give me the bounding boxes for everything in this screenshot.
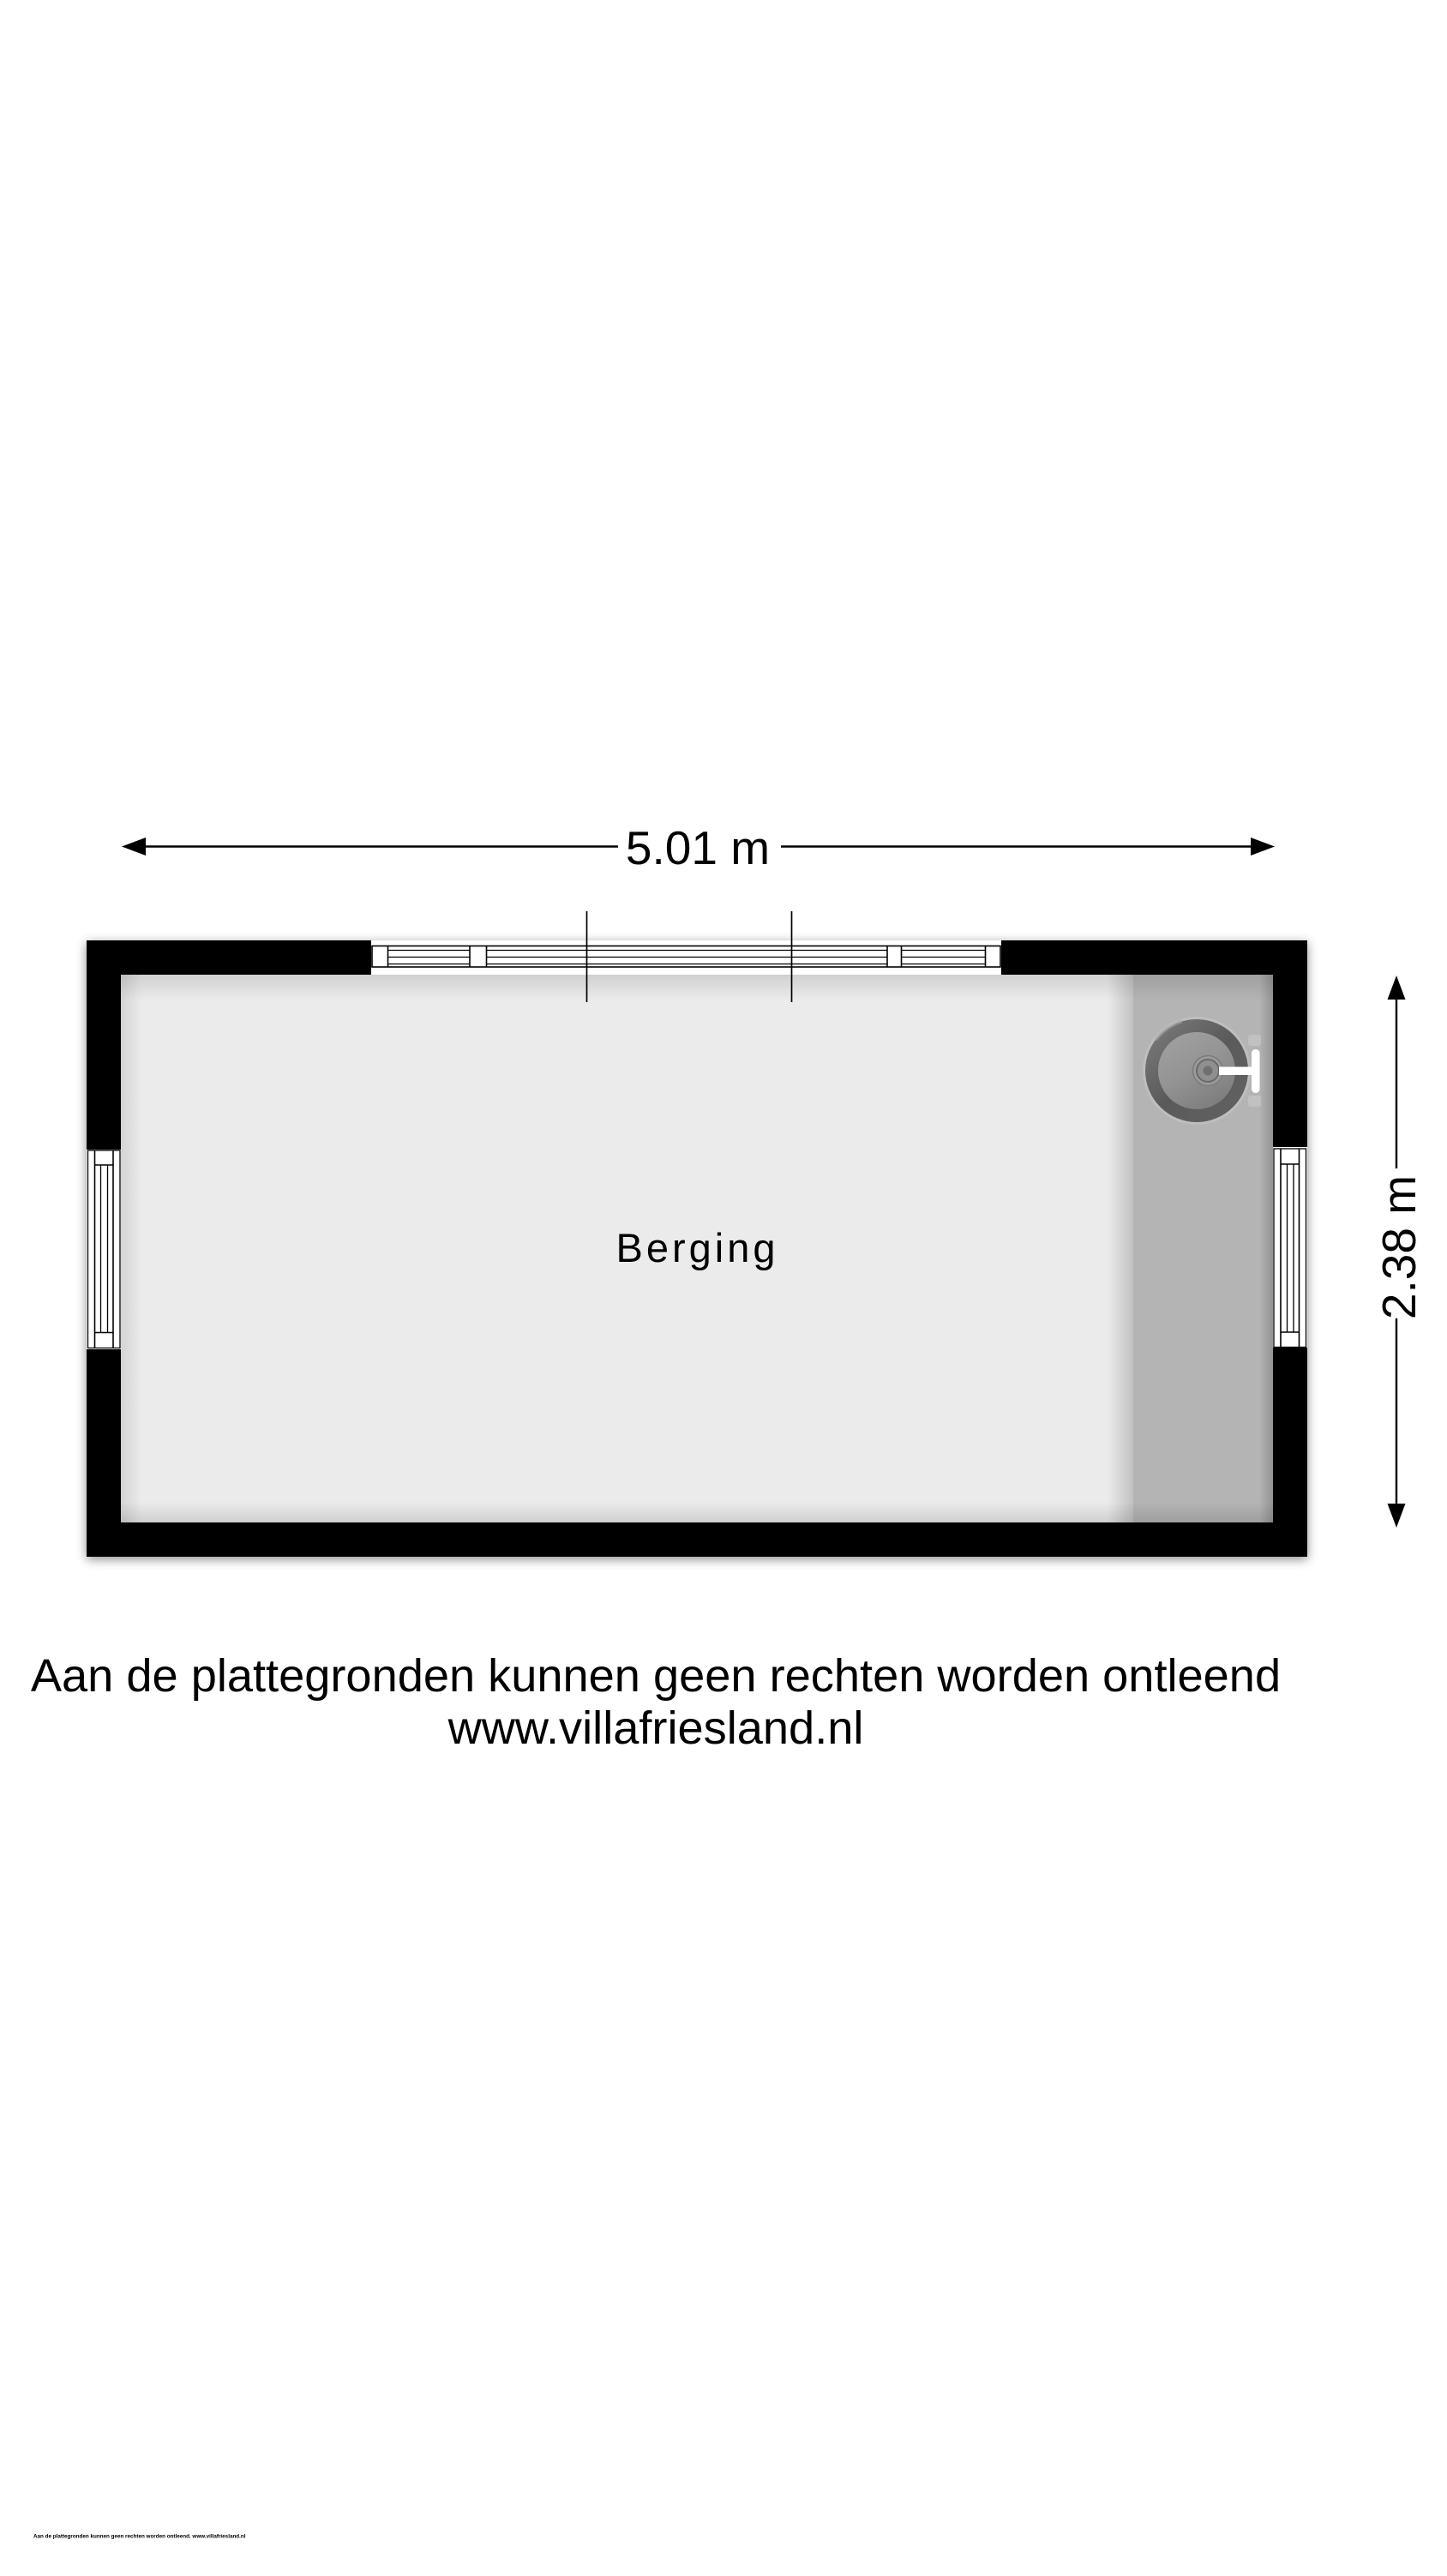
svg-text:www.villafriesland.nl: www.villafriesland.nl	[447, 1702, 864, 1754]
svg-text:Berging: Berging	[616, 1225, 779, 1270]
svg-text:Aan de plattegronden kunnen ge: Aan de plattegronden kunnen geen rechten…	[31, 1650, 1281, 1702]
svg-text:2.38 m: 2.38 m	[1372, 1175, 1426, 1319]
svg-text:5.01 m: 5.01 m	[626, 821, 770, 874]
svg-text:Aan de plattegronden kunnen ge: Aan de plattegronden kunnen geen rechten…	[33, 2534, 246, 2540]
